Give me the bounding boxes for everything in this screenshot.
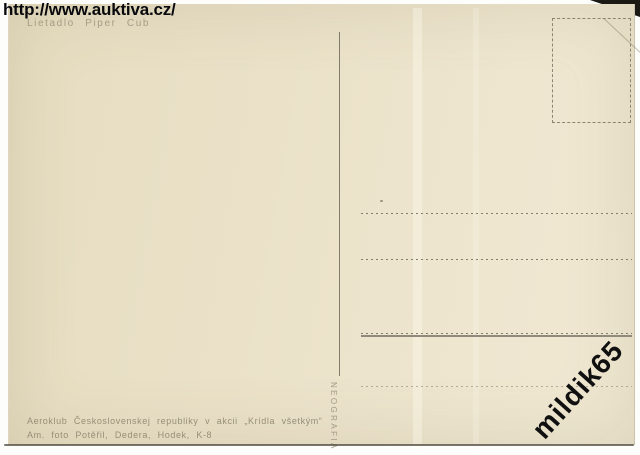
- postcard-scan: Lietadlo Piper Cub NEOGRAFIA Aeroklub Če…: [0, 0, 640, 455]
- publisher-imprint: Aeroklub Československej republiky v akc…: [27, 414, 322, 442]
- imprint-line-2: Am. foto Potěřil, Dedera, Hodek, K-8: [27, 428, 322, 442]
- paper-speck: [380, 200, 383, 202]
- printer-mark: NEOGRAFIA: [329, 382, 338, 451]
- divider-line: [339, 32, 340, 376]
- card-edge-shadow: [4, 444, 634, 446]
- address-line: [361, 333, 632, 334]
- imprint-line-1: Aeroklub Československej republiky v akc…: [27, 414, 322, 428]
- auction-site-watermark: http://www.auktiva.cz/: [3, 0, 176, 20]
- scan-streak: [473, 8, 479, 449]
- address-line: [361, 259, 632, 260]
- postcard-back: Lietadlo Piper Cub NEOGRAFIA Aeroklub Če…: [8, 4, 635, 445]
- scan-streak: [413, 8, 422, 449]
- address-line-rule: [361, 335, 632, 337]
- address-line: [361, 213, 632, 214]
